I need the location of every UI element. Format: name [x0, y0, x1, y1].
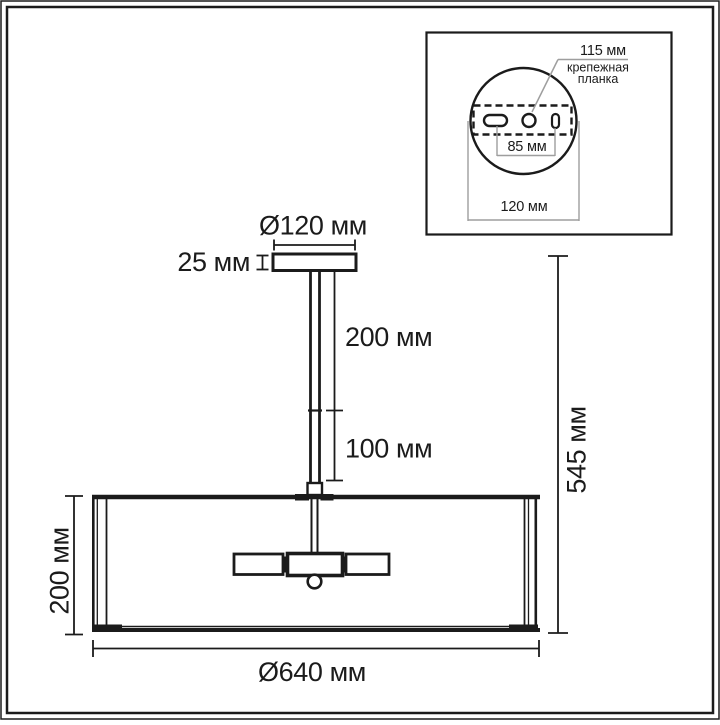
- lamp-socket-left: [234, 554, 283, 575]
- shade-bottom-fitting-left: [93, 625, 122, 632]
- drawing-canvas: 115 мм крепежная планка 85 мм 120 мм Ø12…: [0, 0, 720, 720]
- center-hole: [523, 114, 536, 127]
- mounting-detail-inset: 115 мм крепежная планка 85 мм 120 мм: [427, 33, 672, 235]
- socket-hub-center: [288, 554, 343, 576]
- shade-mount-mark-right: [321, 494, 334, 501]
- shade-mount-mark-left: [295, 494, 309, 501]
- ceiling-canopy: [273, 254, 356, 271]
- inner-frame-border: [7, 7, 713, 713]
- bracket-leader-line: [532, 60, 558, 113]
- rod-collar: [308, 483, 323, 495]
- lamp-side-view: Ø120 мм 25 мм 200 мм 100 мм: [45, 211, 592, 688]
- screw-slot-right: [552, 114, 559, 128]
- screw-slot-left: [484, 115, 507, 126]
- outer-frame-border: [1, 1, 719, 719]
- finial-ball: [308, 575, 322, 589]
- bracket-length-label: 115 мм: [580, 43, 626, 59]
- shade-diameter-label: Ø640 мм: [258, 657, 366, 687]
- bracket-name-line2: планка: [578, 72, 619, 86]
- shade-height-label: 200 мм: [45, 527, 75, 614]
- lamp-dimension-drawing: 115 мм крепежная планка 85 мм 120 мм Ø12…: [0, 0, 720, 720]
- canopy-height-label: 25 мм: [177, 247, 250, 277]
- lamp-socket-right: [346, 554, 389, 575]
- shade-bottom-fitting-right: [509, 625, 538, 632]
- overall-height-label: 545 мм: [562, 406, 592, 493]
- hole-spacing-label: 85 мм: [507, 139, 546, 155]
- upper-rod-label: 200 мм: [345, 322, 432, 352]
- cup-diameter-label: 120 мм: [501, 199, 548, 215]
- lower-rod-label: 100 мм: [345, 434, 432, 464]
- canopy-diameter-label: Ø120 мм: [259, 211, 367, 241]
